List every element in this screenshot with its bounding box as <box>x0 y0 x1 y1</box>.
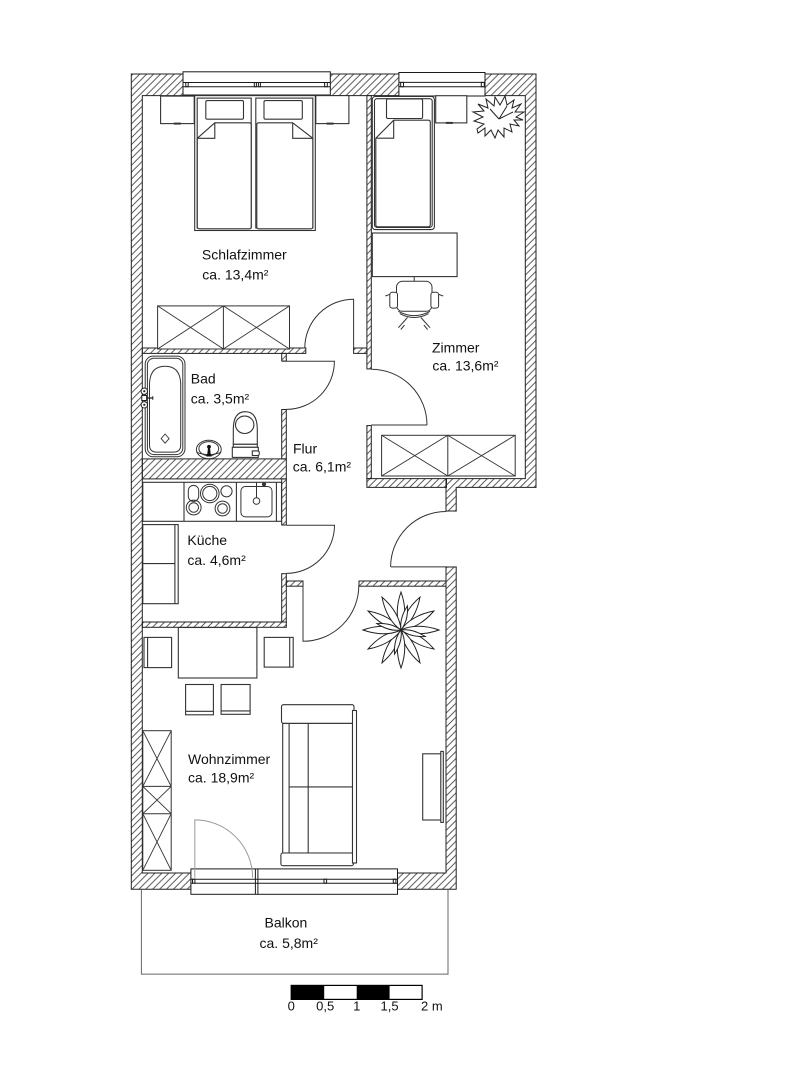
svg-text:Schlafzimmer: Schlafzimmer <box>202 247 287 263</box>
svg-text:Zimmer: Zimmer <box>432 340 480 356</box>
svg-text:1: 1 <box>353 998 360 1013</box>
svg-text:0: 0 <box>288 998 295 1013</box>
svg-text:ca. 13,4m²: ca. 13,4m² <box>202 267 268 283</box>
svg-text:ca. 6,1m²: ca. 6,1m² <box>293 459 352 475</box>
svg-text:Balkon: Balkon <box>265 915 308 931</box>
svg-text:1,5: 1,5 <box>381 998 399 1013</box>
svg-text:ca. 3,5m²: ca. 3,5m² <box>191 390 250 406</box>
svg-text:2 m: 2 m <box>421 998 443 1013</box>
svg-text:Küche: Küche <box>187 532 227 548</box>
svg-text:ca. 4,6m²: ca. 4,6m² <box>187 552 246 568</box>
svg-text:ca. 5,8m²: ca. 5,8m² <box>260 935 319 951</box>
svg-text:0,5: 0,5 <box>316 998 334 1013</box>
svg-text:ca. 13,6m²: ca. 13,6m² <box>432 357 498 373</box>
svg-text:ca. 18,9m²: ca. 18,9m² <box>188 769 254 785</box>
svg-text:Wohnzimmer: Wohnzimmer <box>188 751 271 767</box>
svg-text:Bad: Bad <box>191 370 216 386</box>
svg-text:Flur: Flur <box>293 441 317 457</box>
